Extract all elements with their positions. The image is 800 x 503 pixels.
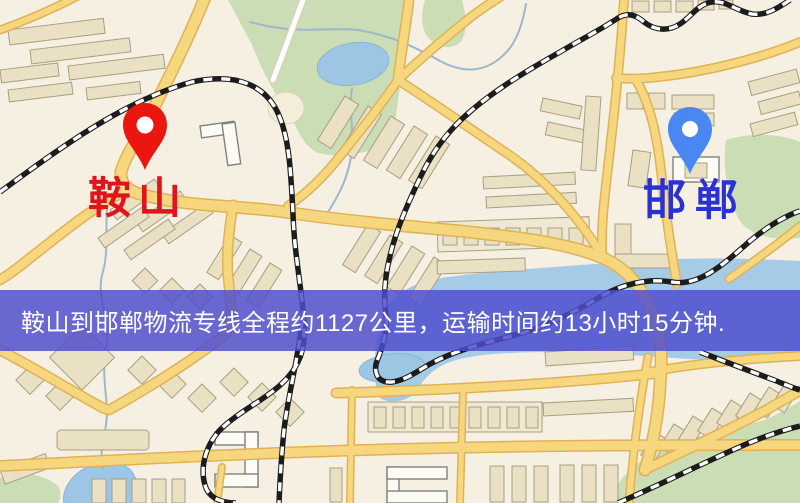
destination-label: 邯郸 — [643, 180, 747, 223]
origin-label: 鞍山 — [88, 178, 188, 221]
info-banner: 鞍山到邯郸物流专线全程约1127公里，运输时间约13小时15分钟. — [0, 290, 800, 351]
map-image — [0, 0, 800, 503]
banner-text: 鞍山到邯郸物流专线全程约1127公里，运输时间约13小时15分钟. — [21, 303, 725, 338]
map-container: 鞍山 邯郸 鞍山到邯郸物流专线全程约1127公里，运输时间约13小时15分钟. — [0, 0, 800, 503]
